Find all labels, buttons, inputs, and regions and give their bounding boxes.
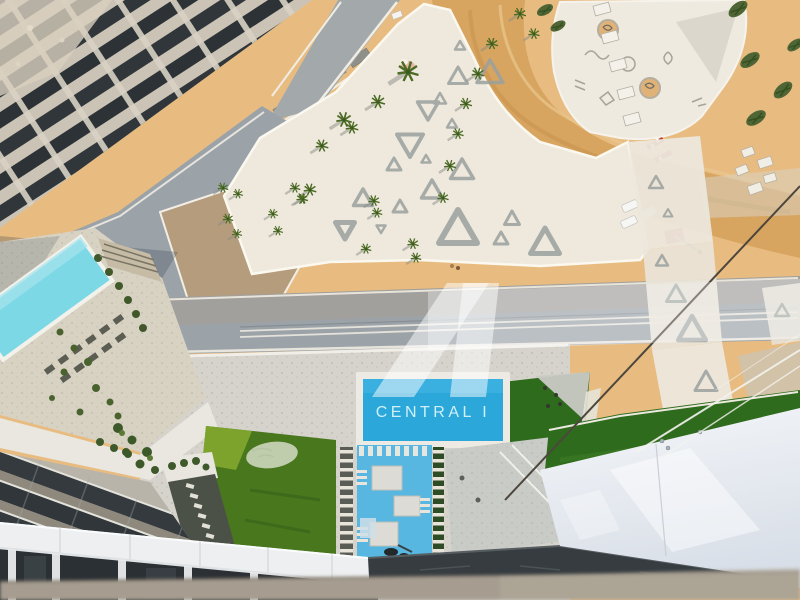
pedestrian xyxy=(450,264,454,268)
aerial-photo: CENTRAL I xyxy=(0,0,800,600)
pool-name-label: CENTRAL I xyxy=(376,404,490,421)
playground-tree-pit xyxy=(640,78,660,98)
access-panel xyxy=(360,518,376,538)
aerial-photo-canvas: CENTRAL I xyxy=(0,0,800,600)
pedestrian xyxy=(456,266,460,270)
pool-equipment xyxy=(384,548,398,556)
